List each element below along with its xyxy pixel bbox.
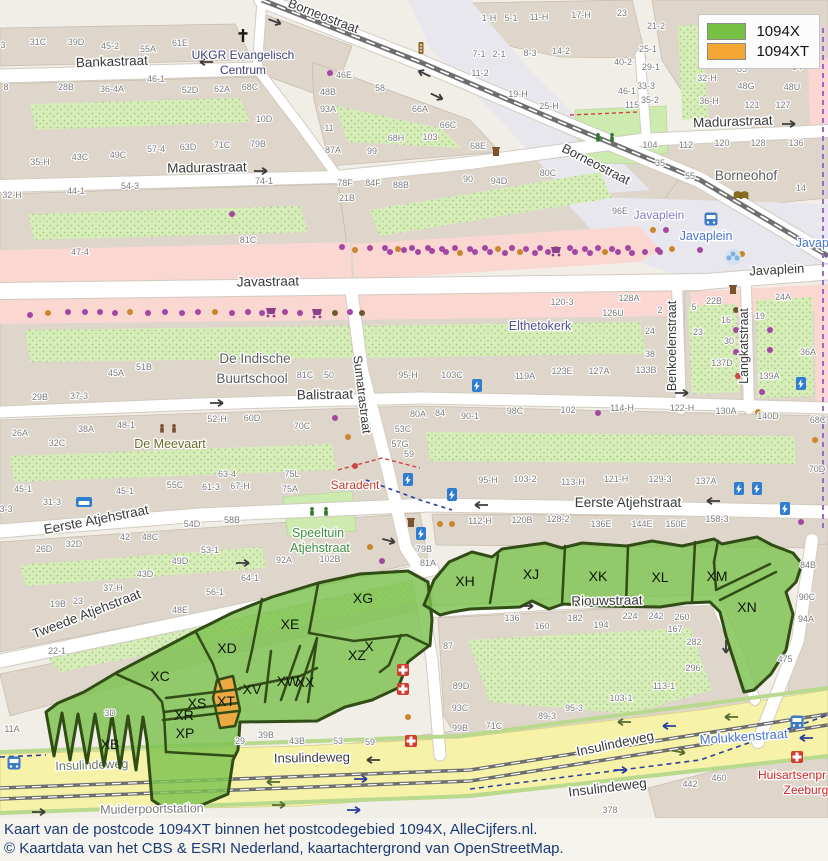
svg-text:11: 11 [324,123,333,133]
svg-text:282: 282 [686,637,701,647]
ev-icon [416,527,426,540]
svg-text:32D: 32D [66,539,83,549]
svg-text:114-H: 114-H [610,403,634,413]
svg-text:Centrum: Centrum [220,63,266,77]
bus-icon [705,213,718,226]
svg-text:80A: 80A [410,409,426,419]
ev-icon [734,482,744,495]
svg-text:99: 99 [367,146,377,156]
book-icon [734,192,748,200]
svg-text:36-4A: 36-4A [100,84,124,94]
svg-text:296: 296 [685,663,700,673]
svg-text:48B: 48B [320,87,336,97]
zone-label-XM: XM [707,568,728,584]
legend-swatch-1094XT [707,43,746,60]
svg-text:137A: 137A [695,476,716,486]
svg-text:29: 29 [235,736,245,746]
svg-text:Huisartsenpr: Huisartsenpr [758,768,826,782]
svg-text:95-H: 95-H [398,370,418,380]
svg-text:23: 23 [73,596,83,606]
svg-text:5: 5 [691,302,696,312]
svg-text:36A: 36A [800,347,816,357]
svg-text:102B: 102B [319,554,340,564]
svg-text:Balistraat: Balistraat [297,387,354,403]
svg-text:94A: 94A [798,614,814,624]
svg-text:127: 127 [775,100,790,110]
svg-text:79B: 79B [250,139,266,149]
svg-text:113-H: 113-H [561,477,585,487]
svg-text:Javaplein: Javaplein [749,261,805,279]
svg-text:Madurastraat: Madurastraat [693,113,773,131]
ev-icon [780,502,790,515]
openstreetmap-background[interactable]: Insulindeweg331C39D45-255A61E828B36-4A46… [0,0,828,818]
svg-text:84: 84 [435,408,445,418]
aid-icon [405,735,417,747]
svg-text:53C: 53C [395,424,412,434]
bus-icon [791,716,804,729]
zone-label-XC: XC [150,668,169,684]
svg-text:54-3: 54-3 [121,181,139,191]
svg-text:43C: 43C [72,152,89,162]
svg-text:70D: 70D [809,464,826,474]
svg-text:19B: 19B [50,599,66,609]
svg-text:11-H: 11-H [530,12,549,22]
svg-text:21-2: 21-2 [647,21,665,31]
svg-text:53-1: 53-1 [201,545,219,555]
svg-text:Javaplein: Javaplein [796,236,828,250]
figg-icon [324,507,328,516]
svg-text:84B: 84B [800,560,816,570]
svg-text:81C: 81C [297,370,314,380]
svg-text:120: 120 [714,138,729,148]
svg-text:378: 378 [602,805,617,815]
svg-text:42: 42 [120,532,130,542]
svg-text:160: 160 [534,621,549,631]
svg-text:7-1: 7-1 [472,49,485,59]
svg-text:8: 8 [3,82,8,92]
svg-text:39B: 39B [258,730,274,740]
svg-text:128-2: 128-2 [546,514,569,524]
svg-text:14-2: 14-2 [552,46,570,56]
figg-icon [596,133,600,142]
svg-text:88B: 88B [393,180,409,190]
svg-text:53: 53 [333,736,343,746]
svg-text:103-1: 103-1 [609,693,632,703]
svg-text:121-H: 121-H [604,474,629,484]
svg-text:45A: 45A [108,368,124,378]
svg-text:Madurastraat: Madurastraat [167,159,247,175]
svg-text:80C: 80C [540,168,557,178]
zone-label-XK: XK [589,568,608,584]
svg-text:90-1: 90-1 [461,411,479,421]
svg-text:130A: 130A [715,406,736,416]
svg-text:Javastraat: Javastraat [237,273,300,289]
svg-text:139A: 139A [758,371,779,381]
svg-text:150E: 150E [665,519,686,529]
svg-text:129-3: 129-3 [648,474,671,484]
svg-text:95-3: 95-3 [565,703,583,713]
svg-text:442: 442 [682,779,697,789]
svg-text:40-2: 40-2 [614,57,632,67]
svg-text:25-1: 25-1 [639,44,657,54]
caption-area: Kaart van de postcode 1094XT binnen het … [0,818,828,861]
svg-text:68H: 68H [388,133,405,143]
svg-text:Buurtschool: Buurtschool [216,371,287,386]
svg-text:224: 224 [622,611,637,621]
svg-text:17-H: 17-H [571,10,591,20]
zone-label-XL: XL [651,569,668,585]
svg-text:Langkatstraat: Langkatstraat [737,308,751,384]
bin-icon [729,285,737,294]
zone-label-XP: XP [176,725,195,741]
svg-text:74-1: 74-1 [255,176,273,186]
svg-text:127A: 127A [588,366,609,376]
svg-text:102: 102 [560,405,575,415]
svg-text:3D: 3D [104,708,116,718]
svg-text:8-3: 8-3 [523,48,536,58]
svg-text:113-1: 113-1 [653,681,675,691]
svg-text:79B: 79B [416,544,432,554]
legend-label-1094X: 1094X [756,23,799,40]
svg-text:144E: 144E [631,519,652,529]
svg-text:87A: 87A [325,145,341,155]
svg-text:30: 30 [724,336,734,346]
svg-text:Borneohof: Borneohof [715,168,778,183]
zone-label-X: X [364,638,374,654]
svg-text:16: 16 [721,315,731,325]
svg-text:14: 14 [796,183,806,193]
zone-label-XX: XX [296,674,315,690]
svg-text:87: 87 [443,641,453,651]
svg-text:24A: 24A [775,292,791,302]
svg-text:78F: 78F [337,178,353,188]
svg-text:39D: 39D [68,37,85,47]
svg-text:Eerste Atjehstraat: Eerste Atjehstraat [575,495,682,510]
svg-text:38: 38 [645,349,655,359]
svg-text:23: 23 [693,327,703,337]
svg-text:28B: 28B [58,82,74,92]
zone-label-XH: XH [455,573,474,589]
zone-label-XR: XR [174,707,193,723]
svg-text:26D: 26D [36,544,53,554]
bin-icon [407,518,415,527]
legend-item-1094XT: 1094XT [707,43,809,60]
svg-text:136E: 136E [590,519,611,529]
svg-text:89D: 89D [453,681,470,691]
svg-text:UKGR Evangelisch: UKGR Evangelisch [192,48,295,62]
svg-text:38A: 38A [78,424,94,434]
legend-item-1094X: 1094X [707,23,809,40]
svg-text:36-H: 36-H [699,96,719,106]
svg-text:62A: 62A [214,84,230,94]
svg-text:3-3: 3-3 [0,504,13,514]
svg-text:35-H: 35-H [30,157,50,167]
svg-text:140D: 140D [757,411,779,421]
svg-text:48-1: 48-1 [117,420,135,430]
svg-text:67-H: 67-H [230,481,250,491]
svg-text:182: 182 [567,613,582,623]
svg-text:93C: 93C [452,703,469,713]
svg-text:51B: 51B [136,362,152,372]
figb-icon [172,424,176,433]
svg-text:Elthetokerk: Elthetokerk [509,319,572,333]
svg-text:11-2: 11-2 [471,68,488,78]
svg-text:50: 50 [324,370,334,380]
legend: 1094X 1094XT [698,14,820,69]
svg-text:84F: 84F [365,178,381,188]
svg-text:70C: 70C [294,421,311,431]
ev-icon [447,488,457,501]
svg-text:5-1: 5-1 [504,13,517,23]
svg-text:56-1: 56-1 [206,587,224,597]
svg-text:66C: 66C [440,120,457,130]
map-canvas[interactable]: Insulindeweg331C39D45-255A61E828B36-4A46… [0,0,828,818]
svg-text:95-H: 95-H [478,475,498,485]
svg-text:54D: 54D [184,519,201,529]
svg-text:52-H: 52-H [207,414,227,424]
zone-label-XG: XG [353,590,373,606]
svg-text:37-H: 37-H [103,583,123,593]
svg-text:48C: 48C [142,532,159,542]
figg-icon [610,133,614,142]
svg-text:35-2: 35-2 [641,95,659,105]
svg-text:48U: 48U [784,82,801,92]
svg-text:103: 103 [422,132,437,142]
svg-text:35: 35 [655,158,665,168]
svg-text:46-1: 46-1 [147,74,165,84]
svg-text:96E: 96E [612,206,628,216]
ev-icon [403,473,413,486]
svg-text:32C: 32C [49,438,66,448]
svg-text:90C: 90C [799,592,816,602]
svg-text:98C: 98C [507,406,524,416]
svg-text:48E: 48E [172,605,188,615]
svg-text:52D: 52D [182,85,199,95]
figb-icon [160,424,164,433]
svg-text:45-2: 45-2 [101,41,119,51]
svg-text:71C: 71C [214,140,231,150]
zone-label-XD: XD [217,640,236,656]
svg-text:194: 194 [593,620,608,630]
svg-text:21B: 21B [339,193,355,203]
svg-text:89-3: 89-3 [538,711,556,721]
svg-text:Benkoelenstraat: Benkoelenstraat [665,300,679,391]
svg-text:90: 90 [463,174,473,184]
svg-text:75L: 75L [284,469,299,479]
svg-text:33-3: 33-3 [637,81,655,91]
zone-label-XB: XB [101,736,120,752]
svg-text:61-3: 61-3 [202,482,220,492]
svg-text:46E: 46E [336,70,352,80]
svg-text:158-3: 158-3 [705,514,728,524]
zone-label-XV: XV [243,681,262,697]
svg-text:68C: 68C [242,82,259,92]
svg-text:71C: 71C [486,721,503,731]
svg-text:Zeeburg: Zeeburg [784,783,828,797]
zone-label-XJ: XJ [523,566,539,582]
svg-text:De Meevaart: De Meevaart [134,437,206,451]
svg-text:136: 136 [788,138,803,148]
svg-text:93A: 93A [320,104,336,114]
svg-text:45-1: 45-1 [116,486,134,496]
svg-text:128: 128 [750,138,765,148]
svg-text:66A: 66A [412,104,428,114]
svg-text:Muiderpoortstation: Muiderpoortstation [100,801,204,817]
svg-text:133B: 133B [635,365,656,375]
svg-text:260: 260 [674,612,689,622]
svg-text:55C: 55C [167,480,184,490]
svg-text:Riouwstraat: Riouwstraat [571,592,643,608]
svg-text:3: 3 [0,40,5,50]
svg-text:29-1: 29-1 [642,62,660,72]
svg-text:26A: 26A [12,428,28,438]
svg-text:1-H: 1-H [482,13,497,23]
svg-text:57G: 57G [391,439,408,449]
svg-text:25-H: 25-H [539,101,559,111]
zone-label-XN: XN [737,599,756,615]
svg-text:49D: 49D [172,556,189,566]
fountain-icon [725,249,741,265]
svg-text:31-3: 31-3 [43,497,61,507]
zone-label-XE: XE [281,616,300,632]
svg-text:32-H: 32-H [697,73,717,83]
svg-text:46-1: 46-1 [618,86,636,96]
svg-text:63D: 63D [180,142,197,152]
bus-icon [8,757,21,770]
aid-icon [397,683,409,695]
svg-text:22-1: 22-1 [48,646,66,656]
svg-text:43B: 43B [289,736,305,746]
ev-icon [752,482,762,495]
svg-text:103C: 103C [441,370,463,380]
svg-text:99B: 99B [452,723,468,733]
svg-text:29B: 29B [32,392,48,402]
svg-text:94D: 94D [491,176,508,186]
caption-line-1: Kaart van de postcode 1094XT binnen het … [0,818,828,839]
svg-text:123E: 123E [551,366,572,376]
figg-icon [310,507,314,516]
svg-text:11A: 11A [4,724,19,734]
svg-text:De Indische: De Indische [219,351,290,366]
svg-text:136: 136 [504,613,519,623]
svg-text:55: 55 [685,171,695,181]
svg-text:Insulindeweg: Insulindeweg [274,749,350,765]
svg-text:167: 167 [667,624,682,634]
svg-text:103-2: 103-2 [513,474,536,484]
svg-text:242: 242 [648,611,663,621]
ev-icon [472,379,482,392]
svg-text:121: 121 [744,100,759,110]
caption-line-2: © Kaartdata van het CBS & ESRI Nederland… [0,839,828,858]
legend-swatch-1094X [707,23,746,40]
svg-text:10D: 10D [256,114,273,124]
postcode-map-page: Insulindeweg331C39D45-255A61E828B36-4A46… [0,0,828,861]
svg-text:47-4: 47-4 [71,247,89,257]
svg-text:45-1: 45-1 [14,484,32,494]
bed-icon [76,497,92,507]
svg-text:137D: 137D [711,358,733,368]
svg-text:120B: 120B [511,515,532,525]
svg-text:2-1: 2-1 [492,49,505,59]
svg-text:60D: 60D [244,413,261,423]
svg-text:58B: 58B [224,515,240,525]
svg-text:64-1: 64-1 [241,573,259,583]
svg-text:460: 460 [711,773,726,783]
svg-text:19: 19 [755,311,765,321]
svg-text:119A: 119A [515,371,535,381]
aid-icon [791,751,803,763]
svg-text:Javaplein: Javaplein [634,208,685,222]
svg-text:59: 59 [365,737,375,747]
zone-label-XT: XT [217,693,235,709]
svg-text:24: 24 [645,326,655,336]
svg-text:58: 58 [375,83,385,93]
svg-text:Atjehstraat: Atjehstraat [290,541,350,555]
svg-text:44-1: 44-1 [67,186,85,196]
svg-text:57-4: 57-4 [147,144,165,154]
svg-text:475: 475 [777,654,792,664]
svg-text:22B: 22B [706,296,722,306]
svg-text:120-3: 120-3 [550,297,573,307]
svg-text:75A: 75A [282,484,298,494]
svg-text:122-H: 122-H [670,403,695,413]
svg-text:49C: 49C [110,150,127,160]
svg-text:112-H: 112-H [468,516,492,526]
svg-text:43D: 43D [137,569,154,579]
svg-text:128A: 128A [618,293,639,303]
svg-text:68C: 68C [810,415,827,425]
svg-text:112: 112 [679,140,693,150]
svg-text:32-H: 32-H [2,190,22,200]
svg-text:104: 104 [642,140,657,150]
svg-text:115: 115 [625,100,639,110]
svg-text:48G: 48G [737,81,754,91]
svg-text:92A: 92A [276,555,292,565]
svg-text:63-4: 63-4 [218,469,236,479]
svg-text:59: 59 [404,449,414,459]
svg-text:31C: 31C [30,37,47,47]
svg-text:Speeltuin: Speeltuin [292,526,344,540]
svg-text:Bankastraat: Bankastraat [76,53,149,71]
svg-text:2: 2 [657,305,662,315]
svg-text:Javaplein: Javaplein [680,229,733,243]
bin-icon [492,147,500,156]
svg-text:Saradent: Saradent [331,478,380,492]
ev-icon [796,377,806,390]
aid-icon [397,664,409,676]
legend-label-1094XT: 1094XT [756,43,809,60]
svg-text:19-H: 19-H [508,89,528,99]
svg-text:23: 23 [617,8,627,18]
svg-text:68E: 68E [470,141,486,151]
svg-text:126U: 126U [602,308,624,318]
svg-text:81C: 81C [240,235,257,245]
svg-text:81A: 81A [420,558,436,568]
signal-icon [419,42,424,54]
svg-text:37-3: 37-3 [70,391,88,401]
svg-text:61E: 61E [172,38,188,48]
